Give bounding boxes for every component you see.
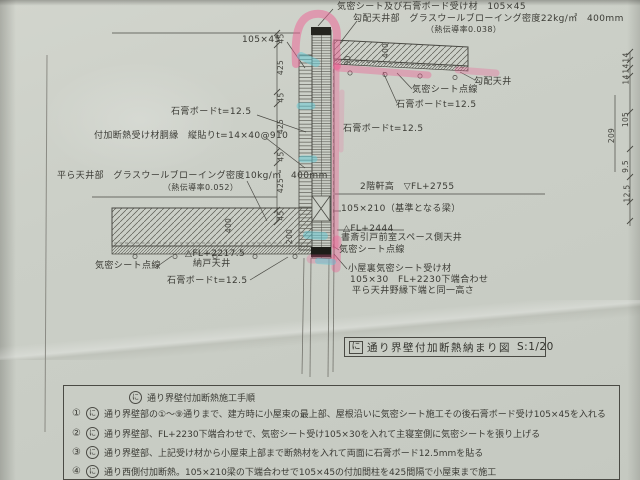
procedure-table: に 通り界壁付加断熱施工手順 ① に 通り界壁部の①～⑨通りまで、建方時に小屋束… bbox=[63, 385, 620, 480]
drawing-scale: S:1/20 bbox=[517, 341, 554, 353]
grid-marker-icon: に bbox=[86, 427, 99, 440]
procedure-row-3: ③ に 通り界壁部、上記受け材から小屋束上部まで断熱材を入れて両面に石膏ボード1… bbox=[72, 446, 483, 459]
label-slope-ceiling: 勾配天井 bbox=[474, 77, 512, 87]
label-flat-ceiling-lambda: （熱伝導率0.052） bbox=[163, 183, 238, 193]
grid-marker-icon: に bbox=[86, 446, 99, 459]
label-attic-receiver-3: 平ら天井野縁下端と同一高さ bbox=[352, 286, 474, 296]
label-slope-ceiling-insulation: 勾配天井部 グラスウールブローイング密度22kg/㎥ 400mm bbox=[353, 14, 624, 24]
label-stud-105x45: 105×45 bbox=[242, 35, 281, 45]
procedure-row-4: ④ に 通り西側付加断熱。105×210梁の下端合わせで105×45の付加間柱を… bbox=[72, 465, 496, 478]
dim-left-45b: 45 bbox=[277, 92, 286, 102]
label-gypsum-left-ceiling: 石膏ボードt=12.5 bbox=[167, 276, 248, 286]
dim-slope-400: 400 bbox=[381, 43, 390, 58]
dim-right-14c: 14 bbox=[622, 74, 631, 84]
procedure-header-row: に 通り界壁付加断熱施工手順 bbox=[129, 391, 255, 404]
label-airtight-dots-right: 気密シート点線 bbox=[412, 85, 478, 95]
dim-left-45a: 45 bbox=[277, 33, 286, 43]
title-grid-marker: に bbox=[349, 341, 363, 354]
dim-flat-200: 200 bbox=[285, 229, 294, 244]
dim-left-45c: 45 bbox=[277, 151, 286, 161]
dim-right-105: 105 bbox=[621, 112, 630, 127]
grid-marker-icon: に bbox=[86, 407, 99, 420]
label-slope-ceiling-lambda: （熱伝導率0.038） bbox=[426, 25, 501, 35]
dim-left-425c: 425 bbox=[276, 178, 285, 193]
step-text: 通り界壁部、上記受け材から小屋束上部まで断熱材を入れて両面に石膏ボード12.5m… bbox=[104, 446, 483, 459]
drawing-title: 通り界壁付加断熱納まり図 bbox=[367, 340, 511, 355]
paper-photo-background: 気密シート及び石膏ボード受け材 105×45 勾配天井部 グラスウールブローイン… bbox=[0, 0, 640, 480]
label-eaves-height: 2階軒高 ▽FL+2755 bbox=[360, 182, 454, 192]
label-gypsum-right-ceiling: 石膏ボードt=12.5 bbox=[396, 100, 477, 110]
grid-marker-icon: に bbox=[129, 391, 142, 404]
label-study-ceiling: 書斎引戸前室スペース側天井 bbox=[341, 233, 462, 243]
label-closet-ceiling: 納戸天井 bbox=[193, 259, 231, 269]
dim-flat-400: 400 bbox=[224, 218, 233, 233]
step-number: ④ bbox=[72, 466, 81, 477]
dim-slope-50: 50 bbox=[344, 55, 353, 65]
dim-right-95: 9.5 bbox=[621, 160, 630, 173]
label-gypsum-wall-left: 石膏ボードt=12.5 bbox=[171, 107, 252, 117]
step-text: 通り西側付加断熱。105×210梁の下端合わせで105×45の付加間柱を425間… bbox=[104, 465, 496, 478]
label-flat-ceiling-insulation: 平ら天井部 グラスウールブローイング密度10kg/㎥ 400mm bbox=[57, 171, 328, 181]
step-number: ③ bbox=[72, 447, 81, 458]
dim-left-425a: 425 bbox=[276, 60, 285, 75]
label-airtight-dots-mid: 気密シート点線 bbox=[339, 245, 405, 255]
procedure-row-2: ② に 通り界壁部、FL+2230下端合わせで、気密シート受け105×30を入れ… bbox=[72, 427, 540, 440]
label-attic-receiver-1: 小屋裏気密シート受け材 bbox=[348, 264, 451, 274]
step-text: 通り界壁部の①～⑨通りまで、建方時に小屋束の最上部、屋根沿いに気密シート施工その… bbox=[104, 407, 606, 420]
label-airtight-dots-left: 気密シート点線 bbox=[95, 261, 161, 271]
label-attic-receiver-2: 105×30 FL+2230下端合わせ bbox=[350, 275, 488, 285]
procedure-row-1: ① に 通り界壁部の①～⑨通りまで、建方時に小屋束の最上部、屋根沿いに気密シート… bbox=[72, 407, 606, 420]
dim-left-45d: 45 bbox=[277, 210, 286, 220]
label-furring: 付加断熱受け材胴縁 縦貼りt=14×40@910 bbox=[94, 131, 288, 141]
step-number: ② bbox=[72, 428, 81, 439]
dim-right-209: 209 bbox=[607, 128, 616, 143]
label-fl22175: △FL+2217.5 bbox=[185, 249, 245, 259]
dim-left-425b: 425 bbox=[276, 119, 285, 134]
step-text: 通り界壁部、FL+2230下端合わせで、気密シート受け105×30を入れて主寝室… bbox=[104, 427, 540, 440]
dim-right-14a: 14 bbox=[622, 52, 631, 62]
dim-right-14b: 14 bbox=[622, 63, 631, 73]
label-gypsum-wall-right: 石膏ボードt=12.5 bbox=[343, 124, 424, 134]
dim-right-125: 12.5 bbox=[622, 185, 631, 203]
drawing-title-box: に 通り界壁付加断熱納まり図 S:1/20 bbox=[344, 337, 546, 357]
procedure-header-text: 通り界壁付加断熱施工手順 bbox=[147, 391, 255, 404]
step-number: ① bbox=[72, 408, 81, 419]
label-beam-105x210: 105×210（基準となる梁） bbox=[341, 204, 461, 214]
grid-marker-icon: に bbox=[86, 465, 99, 478]
label-airtight-board-receiver: 気密シート及び石膏ボード受け材 105×45 bbox=[337, 2, 526, 12]
